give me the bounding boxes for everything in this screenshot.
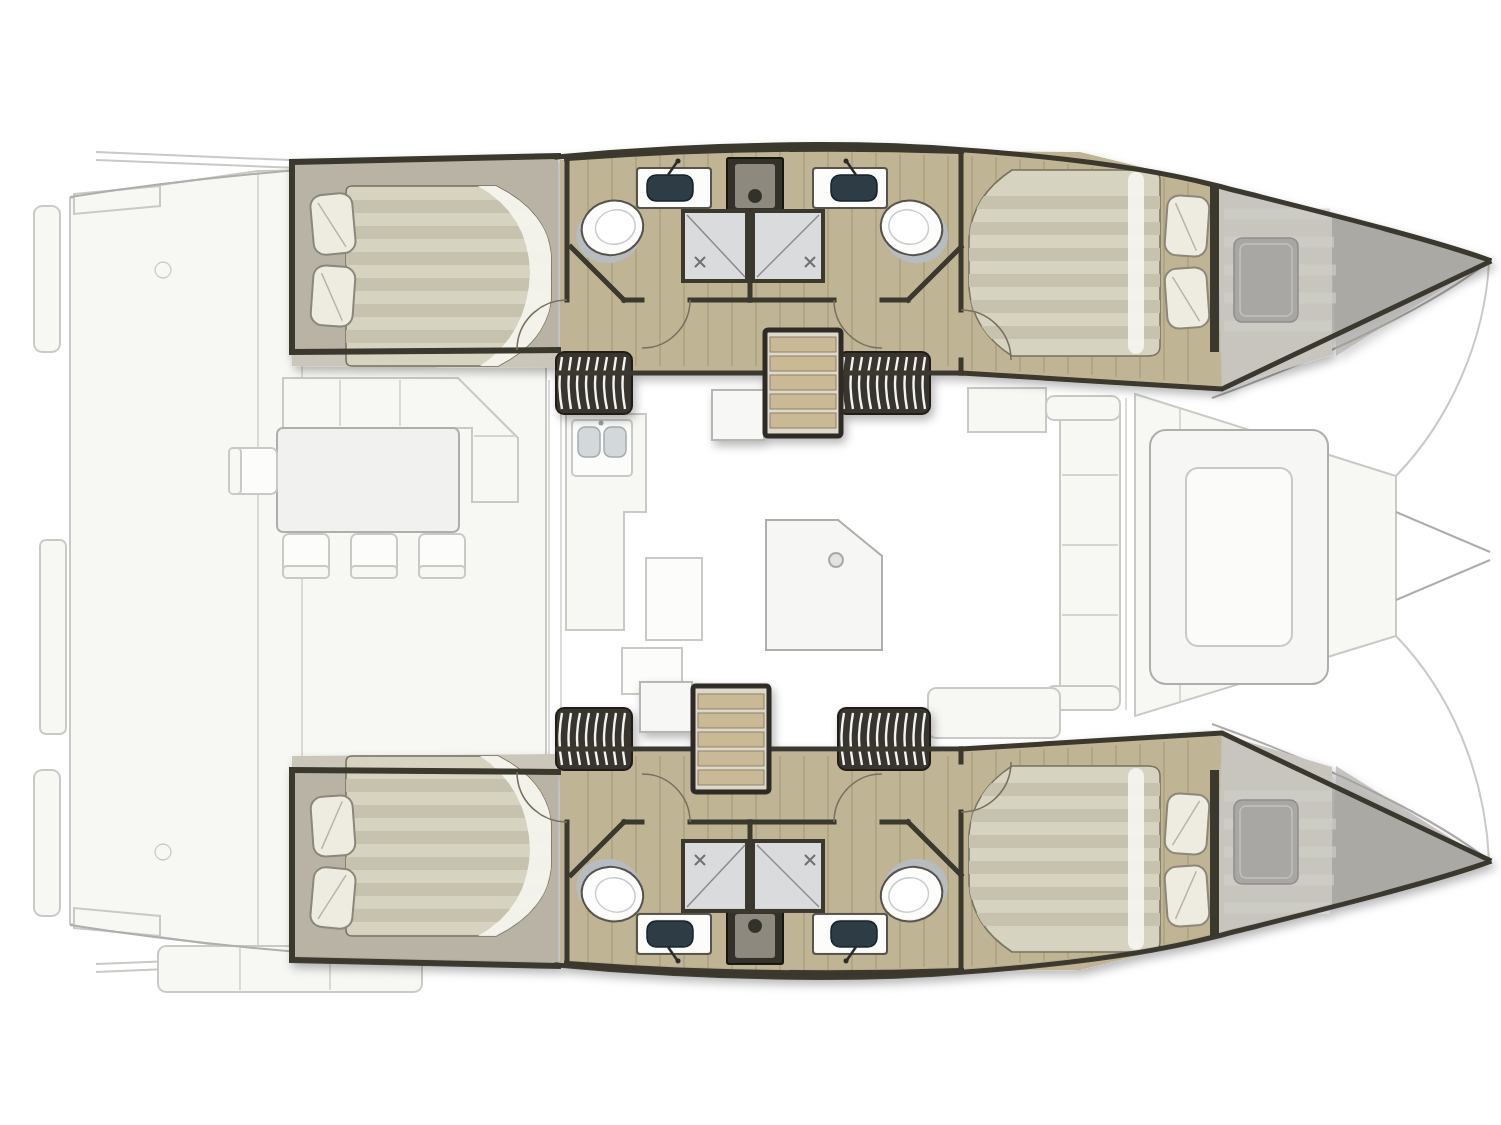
galley-module	[646, 558, 702, 640]
cockpit-chair	[229, 448, 277, 494]
mast-foot-icon	[829, 553, 843, 567]
nav-pod	[766, 520, 882, 650]
swim-platform	[34, 770, 60, 916]
swim-platform	[34, 206, 60, 352]
sink-basin	[604, 427, 626, 457]
cockpit-chair	[351, 534, 397, 578]
bowsprit-lines	[1396, 512, 1490, 600]
galley-sink	[572, 420, 632, 476]
floor-plan-page: Catamaran interior floor plan - top-down…	[0, 0, 1501, 1125]
cockpit-table	[277, 428, 459, 532]
saloon-bench	[928, 688, 1060, 738]
cockpit-chair	[419, 534, 465, 578]
faucet-icon	[599, 421, 604, 426]
forward-seating-well	[1186, 468, 1292, 646]
boarding-step	[40, 540, 66, 734]
settee-armrest	[1046, 396, 1120, 420]
saloon-settee	[1060, 396, 1120, 710]
saloon-cabinet	[968, 388, 1046, 432]
catamaran-floor-plan: Catamaran interior floor plan - top-down…	[0, 0, 1501, 1125]
sink-basin	[578, 427, 600, 457]
cockpit-chair	[283, 534, 329, 578]
